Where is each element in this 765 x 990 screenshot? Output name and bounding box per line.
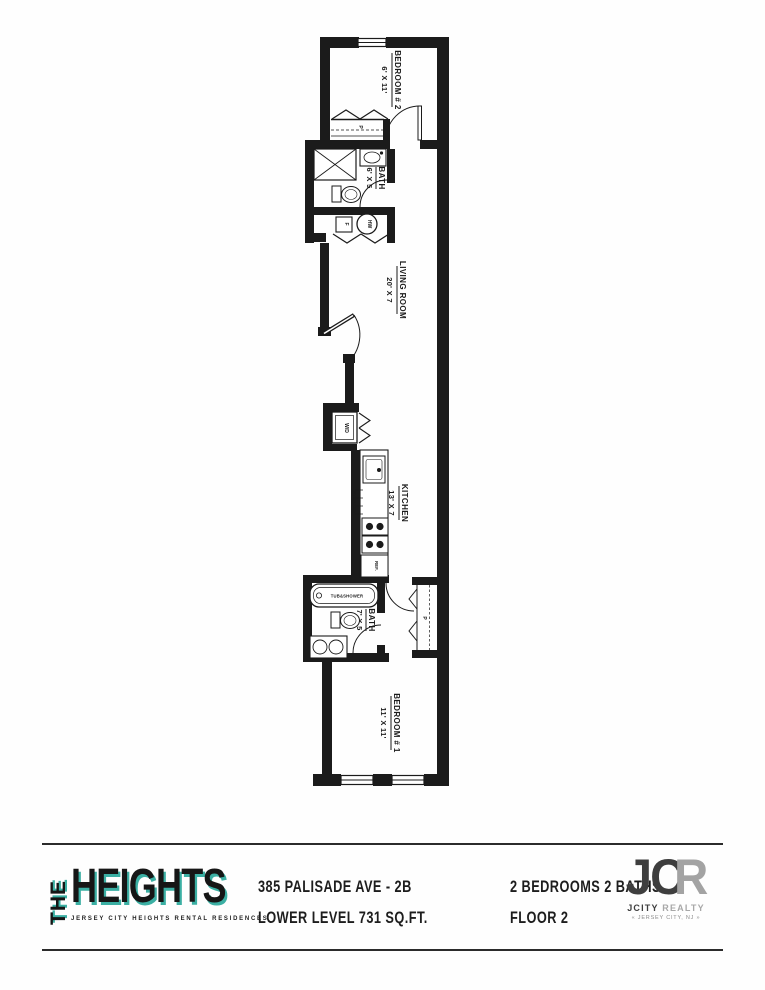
room-bath1-label: BATH 6' X 5	[365, 166, 386, 189]
bedroom1-name: BEDROOM # 1	[392, 693, 401, 753]
bath1-name: BATH	[377, 166, 386, 189]
window-bottom-right	[392, 776, 424, 785]
bedroom2-dim: 6' X 11'	[380, 66, 389, 93]
window-bottom-left	[341, 776, 373, 785]
heights-logo-heights: HEIGHTS	[71, 867, 232, 906]
storage-label: STORAGE	[352, 491, 357, 513]
bedroom2-door	[386, 106, 422, 140]
tub-icon: TUB&SHOWER	[310, 584, 378, 607]
shower-icon	[314, 149, 356, 180]
floor-plan-svg: BEDROOM # 2 6' X 11' P	[0, 0, 765, 843]
unit-address: 385 PALISADE AVE - 2B LOWER LEVEL 731 SQ…	[258, 871, 428, 934]
heights-logo: THE HEIGHTS JERSEY CITY HEIGHTS RENTAL R…	[48, 867, 286, 925]
floorplan-page: BEDROOM # 2 6' X 11' P	[0, 0, 765, 990]
stove-icon	[362, 518, 388, 553]
bath1-dim: 6' X 5	[365, 167, 374, 188]
bedroom1-dim: 11' X 11'	[379, 707, 388, 738]
mech-bifold-doors	[333, 234, 389, 243]
footer: THE HEIGHTS JERSEY CITY HEIGHTS RENTAL R…	[42, 843, 723, 951]
vanity-icon	[310, 636, 347, 658]
heights-logo-tagline: JERSEY CITY HEIGHTS RENTAL RESIDENCES	[71, 915, 268, 922]
heights-logo-the: THE	[48, 869, 69, 925]
room-living-label: LIVING ROOM 20' X 7	[385, 261, 407, 319]
closet-p-bottom-label: P	[421, 616, 427, 620]
floor-plan: BEDROOM # 2 6' X 11' P	[0, 0, 765, 843]
closet-p-bottom: P	[409, 577, 438, 658]
mech-closet: F HW	[305, 207, 395, 243]
water-heater-icon: HW	[357, 214, 377, 234]
tub-label: TUB&SHOWER	[331, 594, 363, 599]
toilet2-icon	[331, 612, 360, 629]
kitchen: STORAGE KITCHEN 13' X 7 REF.	[352, 450, 409, 577]
bath2: TUB&SHOWER BATH 7' X 5	[310, 583, 385, 658]
jcr-logo-r: R	[674, 849, 706, 905]
fridge-icon: REF.	[361, 555, 388, 577]
kitchen-dim: 13' X 7	[387, 490, 396, 516]
room-bedroom1-label: BEDROOM # 1 11' X 11'	[379, 693, 401, 753]
furnace-label: F	[343, 222, 349, 225]
room-kitchen-label: KITCHEN 13' X 7	[387, 484, 409, 522]
washer-dryer-label: W/D	[343, 423, 349, 433]
jcr-logo-mark: JCR	[614, 855, 719, 900]
living-name: LIVING ROOM	[398, 261, 407, 319]
unit-address-line2: LOWER LEVEL 731 SQ.FT.	[258, 902, 428, 933]
bath1: BATH 6' X 5	[314, 149, 395, 207]
living-dim: 20' X 7	[385, 277, 394, 303]
window-top	[358, 39, 386, 47]
kitchen-name: KITCHEN	[400, 484, 409, 522]
sink-icon	[360, 149, 386, 166]
closet-p-top-label: P	[357, 125, 363, 129]
water-heater-label: HW	[366, 220, 372, 229]
furnace-icon: F	[336, 217, 352, 232]
bedroom2-name: BEDROOM # 2	[393, 50, 402, 110]
toilet-icon	[332, 186, 361, 203]
jcr-logo: JCR JCITY REALTY « JERSEY CITY, NJ »	[611, 855, 721, 921]
bedroom1-door-arc	[386, 583, 414, 611]
room-bedroom2-label: BEDROOM # 2 6' X 11'	[380, 50, 402, 110]
fridge-label: REF.	[374, 561, 379, 571]
kitchen-sink-icon	[363, 456, 385, 483]
unit-address-line1: 385 PALISADE AVE - 2B	[258, 871, 428, 902]
jcr-logo-location: « JERSEY CITY, NJ »	[611, 915, 721, 921]
washer-dryer-icon: W/D	[332, 412, 370, 443]
